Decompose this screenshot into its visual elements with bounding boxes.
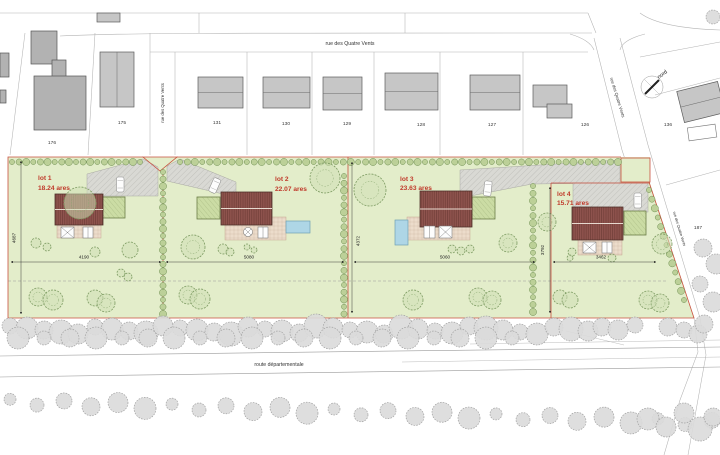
tree-icon xyxy=(251,247,257,253)
hedge-shrub-icon xyxy=(341,282,346,287)
tree-icon xyxy=(122,242,138,258)
hedge-shrub-icon xyxy=(214,158,221,165)
hedge-shrub-icon xyxy=(159,268,166,275)
parcel-number: 131 xyxy=(213,120,221,126)
hedge-shrub-icon xyxy=(529,308,536,315)
building-footprint xyxy=(34,76,86,130)
hedge-shrub-icon xyxy=(529,286,536,293)
roadside-bushes-upper xyxy=(2,314,707,349)
hedge-shrub-icon xyxy=(530,235,536,241)
building-footprint xyxy=(0,53,9,77)
building xyxy=(547,104,572,118)
building-footprint xyxy=(31,31,57,64)
bush-icon xyxy=(608,320,628,340)
hedge-shrub-icon xyxy=(101,159,107,165)
car-icon xyxy=(634,193,642,208)
bush-icon xyxy=(451,329,469,347)
hedge-shrub-icon xyxy=(160,304,166,310)
lot3-garden-plot xyxy=(472,197,495,219)
tree-icon xyxy=(90,247,100,257)
parcel-number: 187 xyxy=(694,225,702,231)
hedge-shrub-icon xyxy=(436,158,443,165)
car-icon xyxy=(634,193,642,208)
hedge-shrub-icon xyxy=(503,158,510,165)
car-icon xyxy=(117,177,125,192)
lot3-pool xyxy=(395,220,408,245)
hedge-shrub-icon xyxy=(159,225,166,232)
hedge-shrub-icon xyxy=(362,159,368,165)
hedge-shrub-icon xyxy=(530,206,535,211)
lot2-pool xyxy=(286,221,310,233)
lot3-area: 23.63 ares xyxy=(400,185,432,192)
hedge-shrub-icon xyxy=(340,252,347,259)
hedge-shrub-icon xyxy=(341,304,346,309)
lot4-name: lot 4 xyxy=(557,191,571,198)
hedge-shrub-icon xyxy=(548,158,555,165)
hedge-shrub-icon xyxy=(273,159,279,165)
bush-icon xyxy=(505,331,519,345)
hedge-shrub-icon xyxy=(646,187,651,192)
hedge-shrub-icon xyxy=(160,233,165,238)
hedge-shrub-icon xyxy=(681,297,686,302)
bush-icon xyxy=(296,402,318,424)
bush-icon xyxy=(397,327,419,349)
bush-icon xyxy=(692,276,708,292)
hedge-shrub-icon xyxy=(160,212,165,217)
hedge-shrub-icon xyxy=(16,159,22,165)
bush-icon xyxy=(656,417,676,437)
hedge-shrub-icon xyxy=(675,279,681,285)
building-outline xyxy=(687,124,717,141)
tree-icon xyxy=(124,273,132,281)
building xyxy=(52,60,66,78)
hedge-shrub-icon xyxy=(52,159,57,164)
street-label-rue-diagonal-lower: rue des Quatre Vents xyxy=(672,211,686,247)
north-arrow: nord xyxy=(641,69,669,98)
hedge-shrub-icon xyxy=(649,196,655,202)
bush-icon xyxy=(115,331,129,345)
tree-icon xyxy=(567,255,573,261)
lot4-depth-dim: 3792 xyxy=(540,244,545,255)
building-footprint xyxy=(0,90,6,103)
hedge-shrub-icon xyxy=(159,289,166,296)
hedge-shrub-icon xyxy=(340,187,347,194)
hedge-shrub-icon xyxy=(311,159,316,164)
bush-icon xyxy=(328,403,340,415)
hedge-shrub-icon xyxy=(340,231,347,238)
hedge-shrub-icon xyxy=(80,159,86,165)
hedge-shrub-icon xyxy=(400,159,405,164)
lot3-width-dim: 5060 xyxy=(440,255,451,260)
hedge-shrub-icon xyxy=(244,159,249,164)
building xyxy=(470,75,520,110)
hedge-shrub-icon xyxy=(200,159,205,164)
hedge-shrub-icon xyxy=(160,191,165,196)
building xyxy=(31,31,57,64)
bush-icon xyxy=(594,407,614,427)
hedge-shrub-icon xyxy=(160,169,165,174)
bush-icon xyxy=(295,329,313,347)
north-label: nord xyxy=(657,69,669,80)
bush-icon xyxy=(85,327,107,349)
hedge-shrub-icon xyxy=(289,159,294,164)
hedge-shrub-icon xyxy=(592,158,599,165)
tree-icon xyxy=(310,163,340,193)
hedge-shrub-icon xyxy=(251,159,257,165)
bush-icon xyxy=(30,398,44,412)
hedge-shrub-icon xyxy=(159,204,166,211)
bush-icon xyxy=(432,402,452,422)
hedge-shrub-icon xyxy=(658,224,664,230)
hedge-shrub-icon xyxy=(160,276,165,281)
parcel-number: 126 xyxy=(581,122,589,128)
parcel-number: 175 xyxy=(118,120,126,126)
hedge-shrub-icon xyxy=(341,267,347,273)
hedge-shrub-icon xyxy=(160,255,165,260)
hedge-shrub-icon xyxy=(340,296,347,303)
hedge-shrub-icon xyxy=(222,159,227,164)
hedge-shrub-icon xyxy=(541,159,547,165)
bush-icon xyxy=(406,407,424,425)
tree-icon xyxy=(97,294,115,312)
hedge-shrub-icon xyxy=(296,159,302,165)
tree-icon xyxy=(226,248,234,256)
building xyxy=(385,73,438,110)
bush-icon xyxy=(475,327,497,349)
hedge-shrub-icon xyxy=(31,159,36,164)
hedge-shrub-icon xyxy=(677,287,684,294)
hedge-shrub-icon xyxy=(44,158,51,165)
bush-icon xyxy=(7,327,29,349)
lot1-area: 18.24 ares xyxy=(38,185,70,192)
hedge-shrub-icon xyxy=(73,159,78,164)
hedge-shrub-icon xyxy=(333,159,338,164)
bush-icon xyxy=(427,331,441,345)
hedge-shrub-icon xyxy=(341,289,347,295)
hedge-shrub-icon xyxy=(9,159,14,164)
hedge-shrub-icon xyxy=(341,261,346,266)
bush-icon xyxy=(568,412,586,430)
lot1-name: lot 1 xyxy=(38,175,52,182)
bush-icon xyxy=(82,398,100,416)
bush-icon xyxy=(627,317,643,333)
hedge-shrub-icon xyxy=(392,158,399,165)
hedge-shrub-icon xyxy=(385,159,391,165)
tree-icon xyxy=(31,238,41,248)
tree-icon xyxy=(483,291,501,309)
hedge-shrub-icon xyxy=(236,158,243,165)
building xyxy=(198,77,243,108)
hedge-shrub-icon xyxy=(87,158,94,165)
hedge-shrub-icon xyxy=(160,197,166,203)
bush-icon xyxy=(458,407,480,429)
hedge-shrub-icon xyxy=(341,246,347,252)
building xyxy=(34,76,86,130)
bush-icon xyxy=(373,329,391,347)
tree-icon xyxy=(562,292,578,308)
hedge-shrub-icon xyxy=(341,217,346,222)
hedge-shrub-icon xyxy=(340,209,347,216)
hedge-shrub-icon xyxy=(467,159,472,164)
building xyxy=(323,77,362,110)
hedge-shrub-icon xyxy=(601,159,606,164)
bush-icon xyxy=(706,10,720,24)
lot1-garden-plot xyxy=(102,197,125,218)
hedge-shrub-icon xyxy=(160,219,166,225)
site-plan-page: 176175131130129128127126136187 xyxy=(0,0,720,455)
hedge-shrub-icon xyxy=(116,159,121,164)
bush-icon xyxy=(134,397,156,419)
bush-icon xyxy=(349,331,363,345)
hedge-shrub-icon xyxy=(607,159,613,165)
site-plan-svg: 176175131130129128127126136187 xyxy=(0,0,720,455)
lot4-garden-plot xyxy=(624,211,646,235)
bush-icon xyxy=(244,403,262,421)
hedge-shrub-icon xyxy=(347,158,354,165)
tree-icon xyxy=(448,245,456,253)
hedge-shrub-icon xyxy=(159,183,166,190)
hedge-shrub-icon xyxy=(184,159,190,165)
bush-icon xyxy=(706,254,720,274)
hedge-shrub-icon xyxy=(529,242,536,249)
hedge-shrub-icon xyxy=(341,202,347,208)
hedge-shrub-icon xyxy=(160,297,165,302)
tree-icon xyxy=(608,254,616,262)
bush-icon xyxy=(139,329,157,347)
hedge-shrub-icon xyxy=(59,159,65,165)
lot3-depth-dim: 4372 xyxy=(356,235,361,246)
hedge-shrub-icon xyxy=(191,158,198,165)
hedge-shrub-icon xyxy=(429,159,435,165)
hedge-shrub-icon xyxy=(266,159,271,164)
hedge-shrub-icon xyxy=(530,228,535,233)
bush-icon xyxy=(61,329,79,347)
bush-icon xyxy=(319,327,341,349)
bush-icon xyxy=(217,329,235,347)
bush-icon xyxy=(271,331,285,345)
hedge-shrub-icon xyxy=(340,159,346,165)
hedge-shrub-icon xyxy=(207,159,213,165)
bush-icon xyxy=(659,318,677,336)
hedge-shrub-icon xyxy=(369,158,376,165)
hedge-shrub-icon xyxy=(303,158,310,165)
building xyxy=(0,90,6,103)
hedge-shrub-icon xyxy=(123,159,129,165)
bush-icon xyxy=(695,315,713,333)
hedge-shrub-icon xyxy=(108,158,115,165)
bush-icon xyxy=(674,403,694,423)
hedge-shrub-icon xyxy=(530,295,535,300)
hedge-shrub-icon xyxy=(378,159,383,164)
tree-icon xyxy=(181,235,205,259)
building xyxy=(0,53,9,77)
lot3-name: lot 3 xyxy=(400,176,414,183)
tree-icon xyxy=(190,289,210,309)
hedge-shrub-icon xyxy=(356,159,361,164)
building xyxy=(100,52,134,107)
hedge-shrub-icon xyxy=(556,159,561,164)
hedge-shrub-icon xyxy=(95,159,100,164)
tree-icon xyxy=(457,247,465,255)
hedge-shrub-icon xyxy=(651,205,658,212)
bush-icon xyxy=(56,393,72,409)
tree-icon xyxy=(651,294,669,312)
hedge-shrub-icon xyxy=(341,239,346,244)
hedge-shrub-icon xyxy=(160,240,166,246)
lot4-area: 15.71 ares xyxy=(557,200,589,207)
hedge-shrub-icon xyxy=(341,311,347,317)
bush-icon xyxy=(241,327,263,349)
lot1-depth-dim: 4687 xyxy=(12,232,17,243)
parcel-number: 176 xyxy=(48,140,56,146)
hedge-shrub-icon xyxy=(445,159,450,164)
building xyxy=(263,77,310,108)
bush-icon xyxy=(37,331,51,345)
parcel-number: 130 xyxy=(282,121,290,127)
lot2-area: 22.07 ares xyxy=(275,186,307,193)
hedge-shrub-icon xyxy=(37,159,43,165)
hedge-shrub-icon xyxy=(65,158,72,165)
hedge-shrub-icon xyxy=(177,159,182,164)
hedge-shrub-icon xyxy=(407,159,413,165)
bush-icon xyxy=(354,408,368,422)
hedge-shrub-icon xyxy=(496,159,502,165)
tree-icon xyxy=(43,243,51,251)
bush-icon xyxy=(516,413,530,427)
hedge-shrub-icon xyxy=(530,279,536,285)
bush-icon xyxy=(192,403,206,417)
hedge-shrub-icon xyxy=(341,173,346,178)
parcel-number: 128 xyxy=(417,122,425,128)
hedge-shrub-icon xyxy=(341,195,346,200)
bush-icon xyxy=(380,403,396,419)
bush-icon xyxy=(490,408,502,420)
hedge-shrub-icon xyxy=(578,159,583,164)
bush-icon xyxy=(694,239,712,257)
tree-icon xyxy=(499,234,517,252)
tree-icon xyxy=(652,234,672,254)
hedge-shrub-icon xyxy=(489,159,494,164)
hedge-shrub-icon xyxy=(529,264,536,271)
hedge-shrub-icon xyxy=(280,158,287,165)
building-footprint xyxy=(52,60,66,78)
hedge-shrub-icon xyxy=(258,158,265,165)
tree-icon xyxy=(354,174,386,206)
car-icon xyxy=(483,181,492,197)
hedge-shrub-icon xyxy=(585,159,591,165)
tree-icon xyxy=(43,290,63,310)
hedge-shrub-icon xyxy=(481,158,488,165)
street-label-rue-left: rue des Quatre Vents xyxy=(160,83,165,123)
hedge-shrub-icon xyxy=(474,159,480,165)
lot2-garden-plot xyxy=(197,197,220,219)
bush-icon xyxy=(218,398,234,414)
street-label-rue-top: rue des Quatre Vents xyxy=(325,41,374,47)
hedge-shrub-icon xyxy=(529,197,536,204)
car-icon xyxy=(483,181,492,197)
hedge-shrub-icon xyxy=(341,224,347,230)
street-label-route: route départementale xyxy=(254,362,303,368)
bush-icon xyxy=(270,397,290,417)
hedge-shrub-icon xyxy=(518,159,524,165)
parcel-number: 127 xyxy=(488,122,496,128)
tree-icon xyxy=(403,290,423,310)
hedge-shrub-icon xyxy=(459,158,466,165)
hedge-shrub-icon xyxy=(422,159,427,164)
bush-icon xyxy=(703,292,720,312)
bush-icon xyxy=(193,331,207,345)
bush-icon xyxy=(163,327,185,349)
hedge-shrub-icon xyxy=(340,274,347,281)
hedge-shrub-icon xyxy=(530,183,535,188)
tree-icon xyxy=(466,245,474,253)
hedge-shrub-icon xyxy=(570,158,577,165)
hedge-shrub-icon xyxy=(341,180,347,186)
building xyxy=(97,13,120,22)
tree-icon xyxy=(244,244,250,250)
bush-icon xyxy=(108,393,128,413)
bush-icon xyxy=(4,393,16,405)
hedge-shrub-icon xyxy=(525,158,532,165)
building-footprint xyxy=(97,13,120,22)
hedge-shrub-icon xyxy=(529,219,536,226)
hedge-shrub-icon xyxy=(530,190,536,196)
hedge-shrub-icon xyxy=(229,159,235,165)
hedge-shrub-icon xyxy=(614,158,621,165)
building-footprint xyxy=(547,104,572,118)
hedge-shrub-icon xyxy=(563,159,569,165)
hedge-shrub-icon xyxy=(452,159,458,165)
street-label-rue-diagonal: rue des Quatre Vents xyxy=(609,77,626,119)
hedge-shrub-icon xyxy=(530,272,535,277)
lot2-name: lot 2 xyxy=(275,176,289,183)
tree-icon xyxy=(538,213,556,231)
hedge-shrub-icon xyxy=(129,158,136,165)
parcel-number: 129 xyxy=(343,121,351,127)
lot1-width-dim: 4190 xyxy=(79,255,90,260)
hedge-shrub-icon xyxy=(530,257,536,263)
hedge-shrub-icon xyxy=(160,176,166,182)
hedge-shrub-icon xyxy=(534,159,539,164)
lot4-width-dim: 3462 xyxy=(596,255,607,260)
hedge-shrub-icon xyxy=(137,159,142,164)
bush-icon xyxy=(166,398,178,410)
hedge-shrub-icon xyxy=(530,301,536,307)
car-icon xyxy=(117,177,125,192)
bush-icon xyxy=(542,408,558,424)
hedge-shrub-icon xyxy=(673,270,678,275)
hedge-shrub-icon xyxy=(414,158,421,165)
hedge-shrub-icon xyxy=(23,158,30,165)
lot2-width-dim: 5080 xyxy=(244,255,255,260)
hedge-shrub-icon xyxy=(655,215,660,220)
hedge-shrub-icon xyxy=(669,260,676,267)
hedge-shrub-icon xyxy=(511,159,516,164)
hedge-shrub-icon xyxy=(160,283,166,289)
hedge-shrub-icon xyxy=(530,250,535,255)
hedge-shrub-icon xyxy=(530,213,536,219)
parcel-number: 136 xyxy=(664,122,672,128)
hedge-shrub-icon xyxy=(159,247,166,254)
